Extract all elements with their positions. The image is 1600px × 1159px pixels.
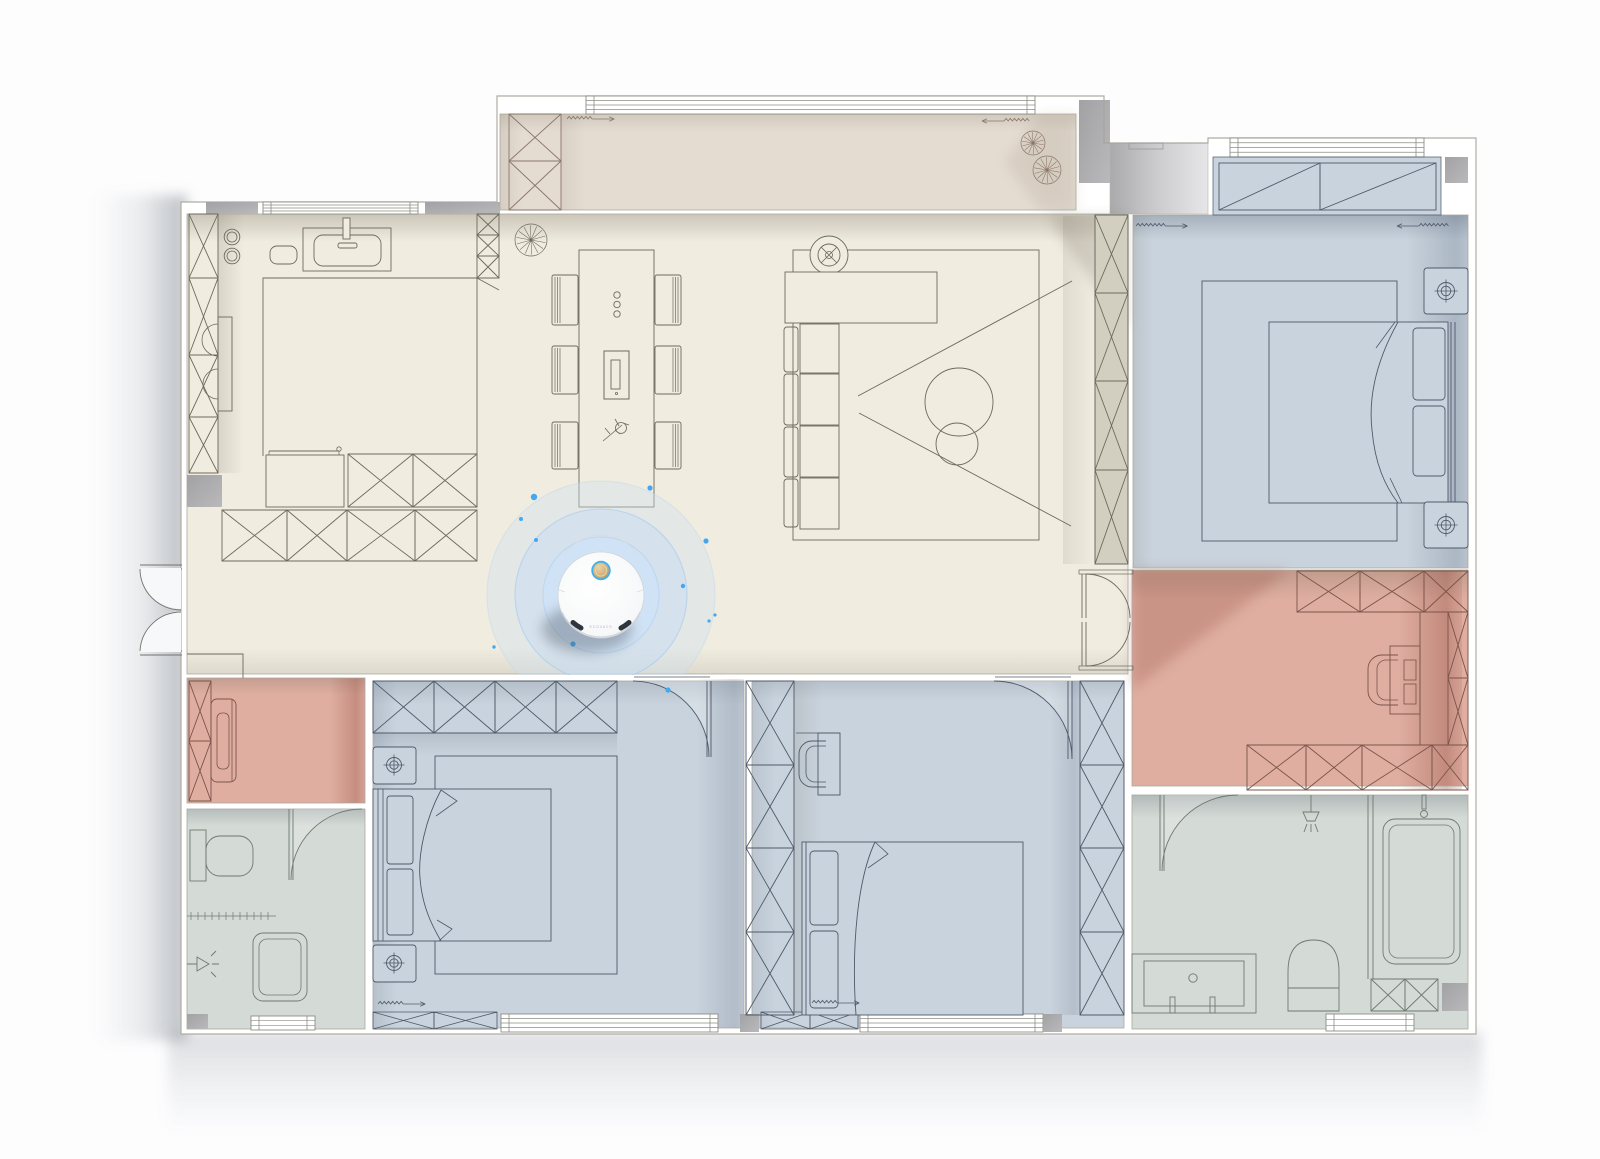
svg-text:ECOVACS: ECOVACS <box>590 625 613 629</box>
